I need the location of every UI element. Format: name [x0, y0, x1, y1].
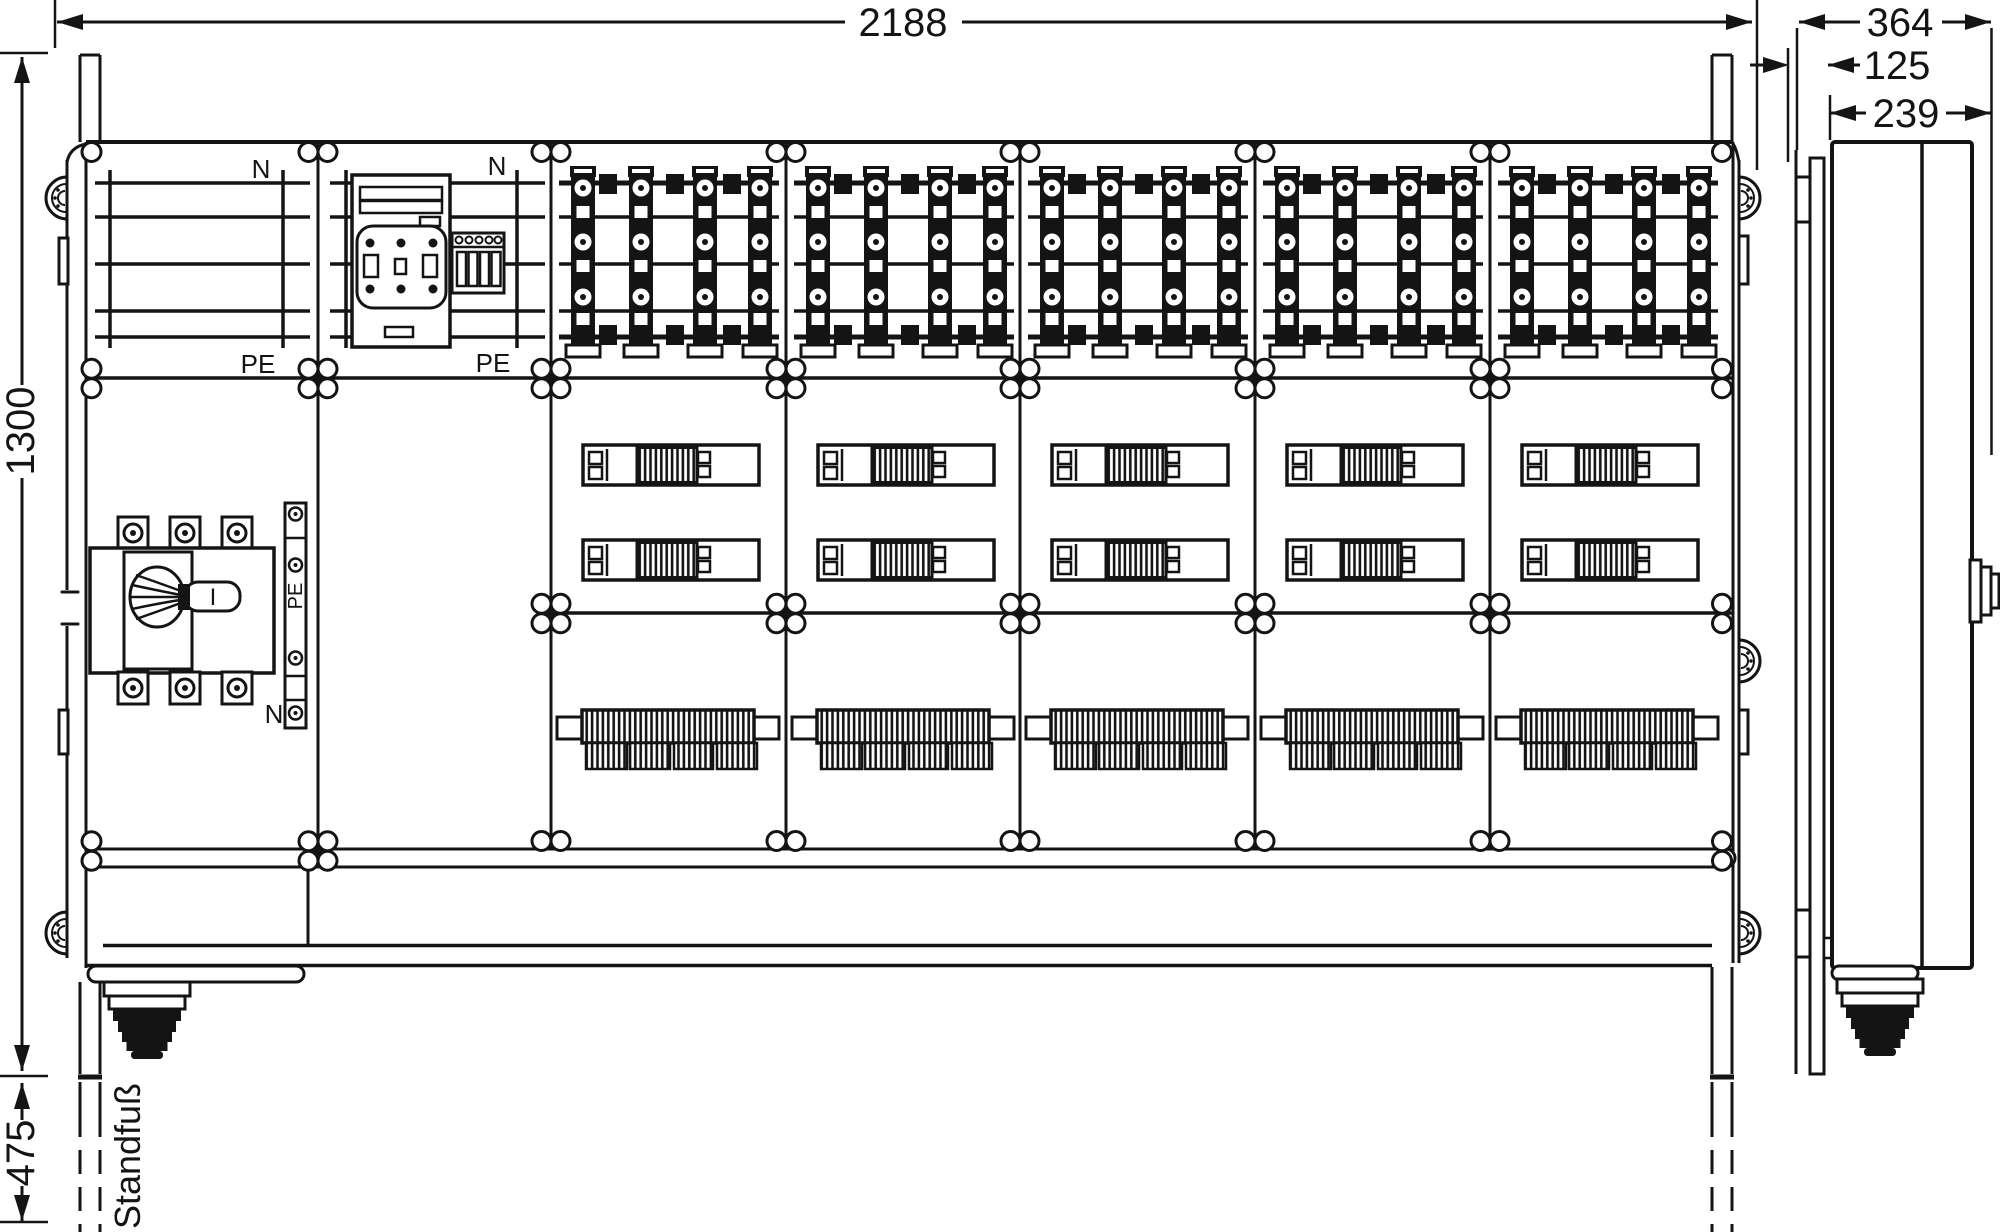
fuse-rail-panel-1: [559, 166, 779, 357]
dimension-cabinet-height: 1300: [0, 53, 48, 1076]
fuse-switch-panel-3: [1052, 445, 1228, 580]
meter-panel: N PE: [330, 151, 545, 378]
wing-screw-icon: [46, 912, 67, 954]
terminal-device: [452, 233, 504, 293]
busbar-n-label: N: [252, 154, 271, 184]
side-bracket-top: [1796, 177, 1810, 222]
fuse-rail-panel-3: [1028, 166, 1248, 357]
cable-gland-icon: [104, 982, 190, 1059]
front-view: N PE N PE: [46, 55, 1760, 1232]
latch-icon: [59, 238, 68, 284]
dim-total-width-value: 2188: [859, 1, 948, 45]
busbar-panel: N PE: [95, 154, 310, 379]
pe-rail-label: PE: [285, 583, 307, 610]
dim-stand-height-value: 475: [0, 1120, 43, 1187]
stand-foot-label: Standfuß: [107, 1083, 148, 1229]
busbar-pe-label: PE: [241, 349, 276, 379]
dim-cabinet-height-value: 1300: [0, 387, 43, 476]
wing-screw-icon: [1739, 177, 1760, 219]
terminal-panel-5: [1496, 710, 1718, 769]
dim-side-total-depth-value: 364: [1867, 1, 1934, 45]
fuse-switch-panel-2: [818, 445, 994, 580]
dimension-stand-height: 475: [0, 1083, 48, 1222]
schematic-page: 2188 1300 475 364 125: [0, 0, 2000, 1232]
fuse-switch-panel-1: [583, 445, 759, 580]
side-bracket-bottom: [1796, 910, 1810, 957]
terminal-panel-1: [557, 710, 779, 769]
cabinet-technical-drawing: 2188 1300 475 364 125: [0, 0, 2000, 1232]
dim-side-plate-depth-value: 125: [1864, 44, 1931, 88]
latch-icon: [1739, 710, 1748, 754]
side-cable-gland-icon: [1837, 979, 1923, 1056]
terminal-panel-4: [1261, 710, 1483, 769]
dim-side-body-depth-value: 239: [1873, 92, 1940, 136]
plinth: [86, 852, 1712, 1059]
terminal-panel-2: [792, 710, 1014, 769]
terminal-panel-3: [1026, 710, 1248, 769]
wing-screw-icon: [1739, 640, 1760, 682]
wing-screw-icon: [46, 177, 67, 219]
side-mounting-plate: [1810, 158, 1824, 1074]
stand-pole-right: [1710, 55, 1734, 1232]
bolt-circles: [82, 143, 1732, 871]
meter-pe-label: PE: [476, 348, 511, 378]
fuse-rail-panel-5: [1498, 166, 1718, 357]
fuse-switch-panel-4: [1287, 445, 1463, 580]
dimension-side-body-depth: 239: [1830, 92, 1991, 140]
fuse-rail-panel-2: [794, 166, 1014, 357]
meter-n-label: N: [488, 151, 507, 181]
latch-icon: [1739, 236, 1748, 284]
latch-icon: [59, 710, 68, 754]
neutral-rail-label: N: [265, 699, 284, 729]
side-view: [1796, 142, 1999, 1074]
main-switch-panel: I PE N: [90, 503, 307, 729]
fuse-rail-panel-4: [1263, 166, 1483, 357]
switch-position-label: I: [210, 584, 217, 611]
fuse-switch-panel-5: [1522, 445, 1698, 580]
wing-screw-icon: [1739, 912, 1760, 954]
side-enclosure-body: [1832, 142, 1972, 968]
sls-breaker: [352, 175, 450, 347]
side-switch-handle: [1970, 560, 1999, 622]
